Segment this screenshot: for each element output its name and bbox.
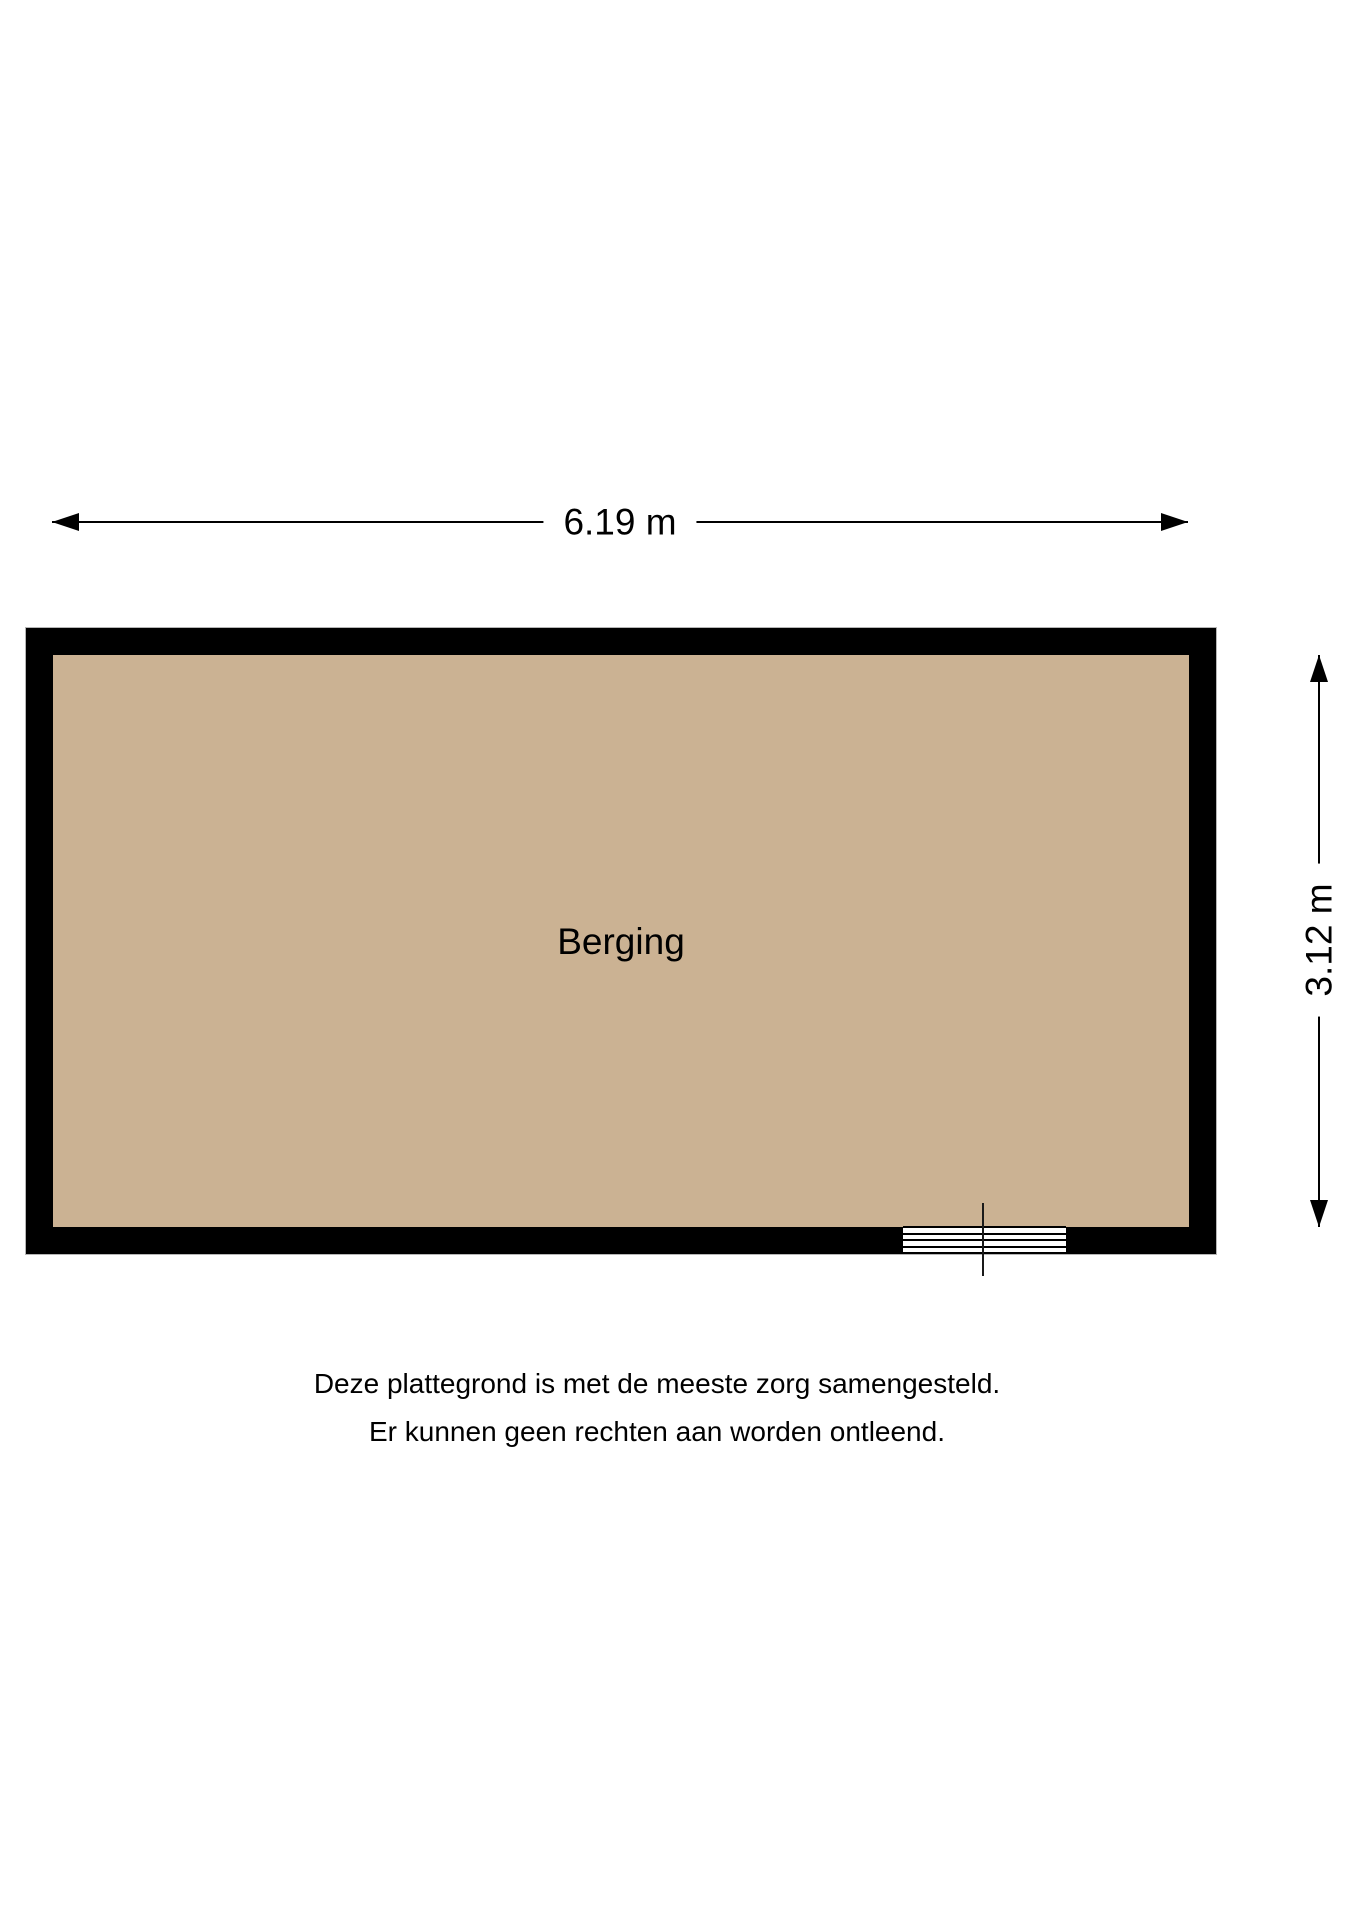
height-dimension-label: 3.12 m: [1295, 863, 1344, 1016]
disclaimer-line-1: Deze plattegrond is met de meeste zorg s…: [314, 1360, 1000, 1408]
door-leaf-line: [982, 1203, 984, 1276]
width-dimension-label: 6.19 m: [543, 498, 696, 547]
threshold-line: [903, 1246, 1066, 1248]
arrowhead-left-icon: [52, 513, 79, 531]
threshold-line: [903, 1233, 1066, 1235]
disclaimer: Deze plattegrond is met de meeste zorg s…: [314, 1360, 1000, 1456]
room-label: Berging: [557, 923, 685, 960]
door-opening: [903, 1226, 1066, 1254]
threshold-line: [903, 1239, 1066, 1241]
threshold-line: [903, 1252, 1066, 1254]
room-berging: Berging: [26, 628, 1216, 1254]
threshold-line: [903, 1226, 1066, 1228]
floorplan-canvas: 6.19 m Berging 3.12 m Deze plattegrond i…: [0, 0, 1358, 1920]
arrowhead-right-icon: [1161, 513, 1188, 531]
arrowhead-down-icon: [1310, 1200, 1328, 1227]
disclaimer-line-2: Er kunnen geen rechten aan worden ontlee…: [314, 1408, 1000, 1456]
arrowhead-up-icon: [1310, 655, 1328, 682]
